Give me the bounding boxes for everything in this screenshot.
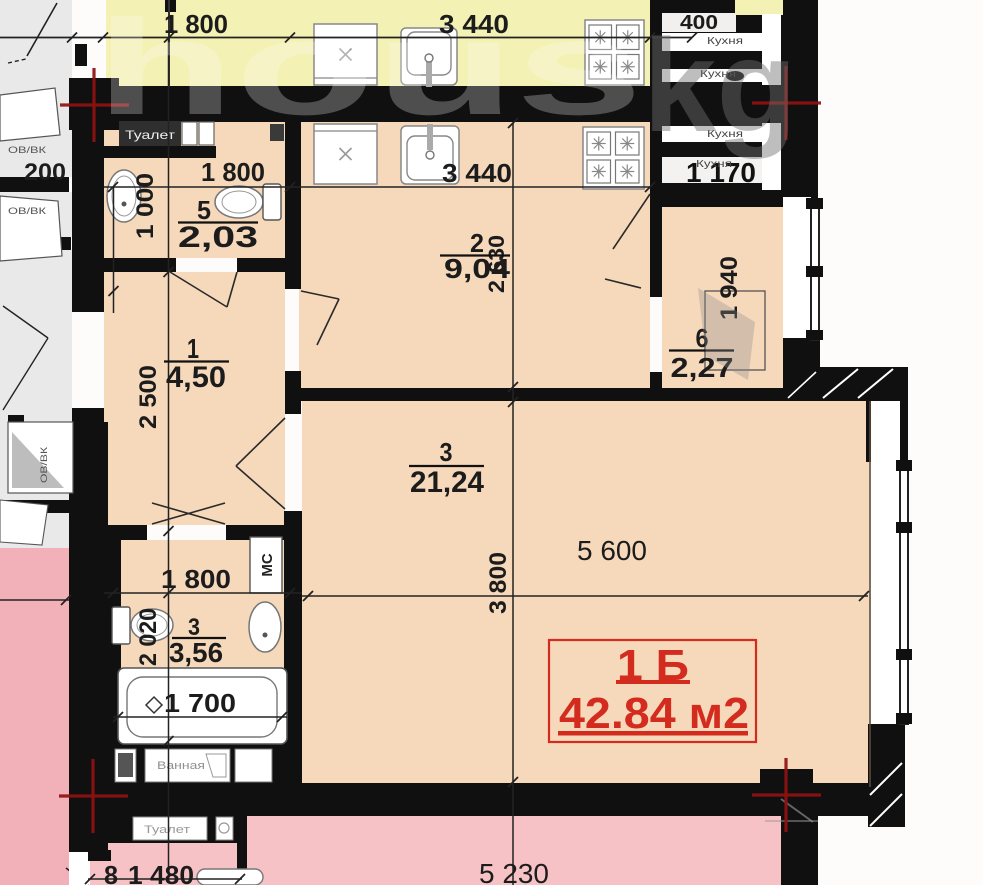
svg-text:1 700: 1 700 — [164, 688, 236, 718]
svg-text:1 480: 1 480 — [128, 860, 194, 885]
svg-text:3 800: 3 800 — [485, 552, 512, 614]
svg-text:2 500: 2 500 — [135, 365, 162, 429]
svg-text:hous: hous — [95, 0, 643, 143]
svg-text:kg: kg — [643, 12, 797, 159]
svg-text:5 600: 5 600 — [577, 535, 647, 566]
svg-text:42.84 м2: 42.84 м2 — [559, 689, 749, 738]
svg-text:МС: МС — [259, 553, 276, 576]
svg-text:Кухня: Кухня — [696, 159, 732, 170]
svg-text:2 020: 2 020 — [135, 608, 162, 666]
svg-text:Ванная: Ванная — [157, 760, 205, 772]
svg-text:Туалет: Туалет — [144, 824, 190, 836]
svg-text:9,04: 9,04 — [444, 253, 511, 284]
svg-text:1 000: 1 000 — [132, 173, 159, 239]
svg-text:4,50: 4,50 — [166, 361, 226, 394]
svg-text:1: 1 — [187, 333, 199, 364]
svg-text:1 800: 1 800 — [161, 564, 231, 594]
svg-text:1 800: 1 800 — [201, 157, 265, 187]
svg-text:ОВ/ВК: ОВ/ВК — [8, 145, 47, 155]
svg-text:3,56: 3,56 — [169, 637, 223, 668]
svg-text:21,24: 21,24 — [410, 466, 484, 499]
svg-text:8: 8 — [104, 860, 118, 885]
svg-text:3: 3 — [440, 437, 453, 467]
svg-text:3 440: 3 440 — [442, 158, 512, 188]
svg-text:5 230: 5 230 — [479, 858, 549, 885]
svg-text:2,03: 2,03 — [178, 221, 258, 254]
svg-text:ОВ/ВК: ОВ/ВК — [39, 446, 49, 483]
svg-text:200: 200 — [24, 159, 66, 186]
svg-text:ОВ/ВК: ОВ/ВК — [8, 206, 47, 216]
